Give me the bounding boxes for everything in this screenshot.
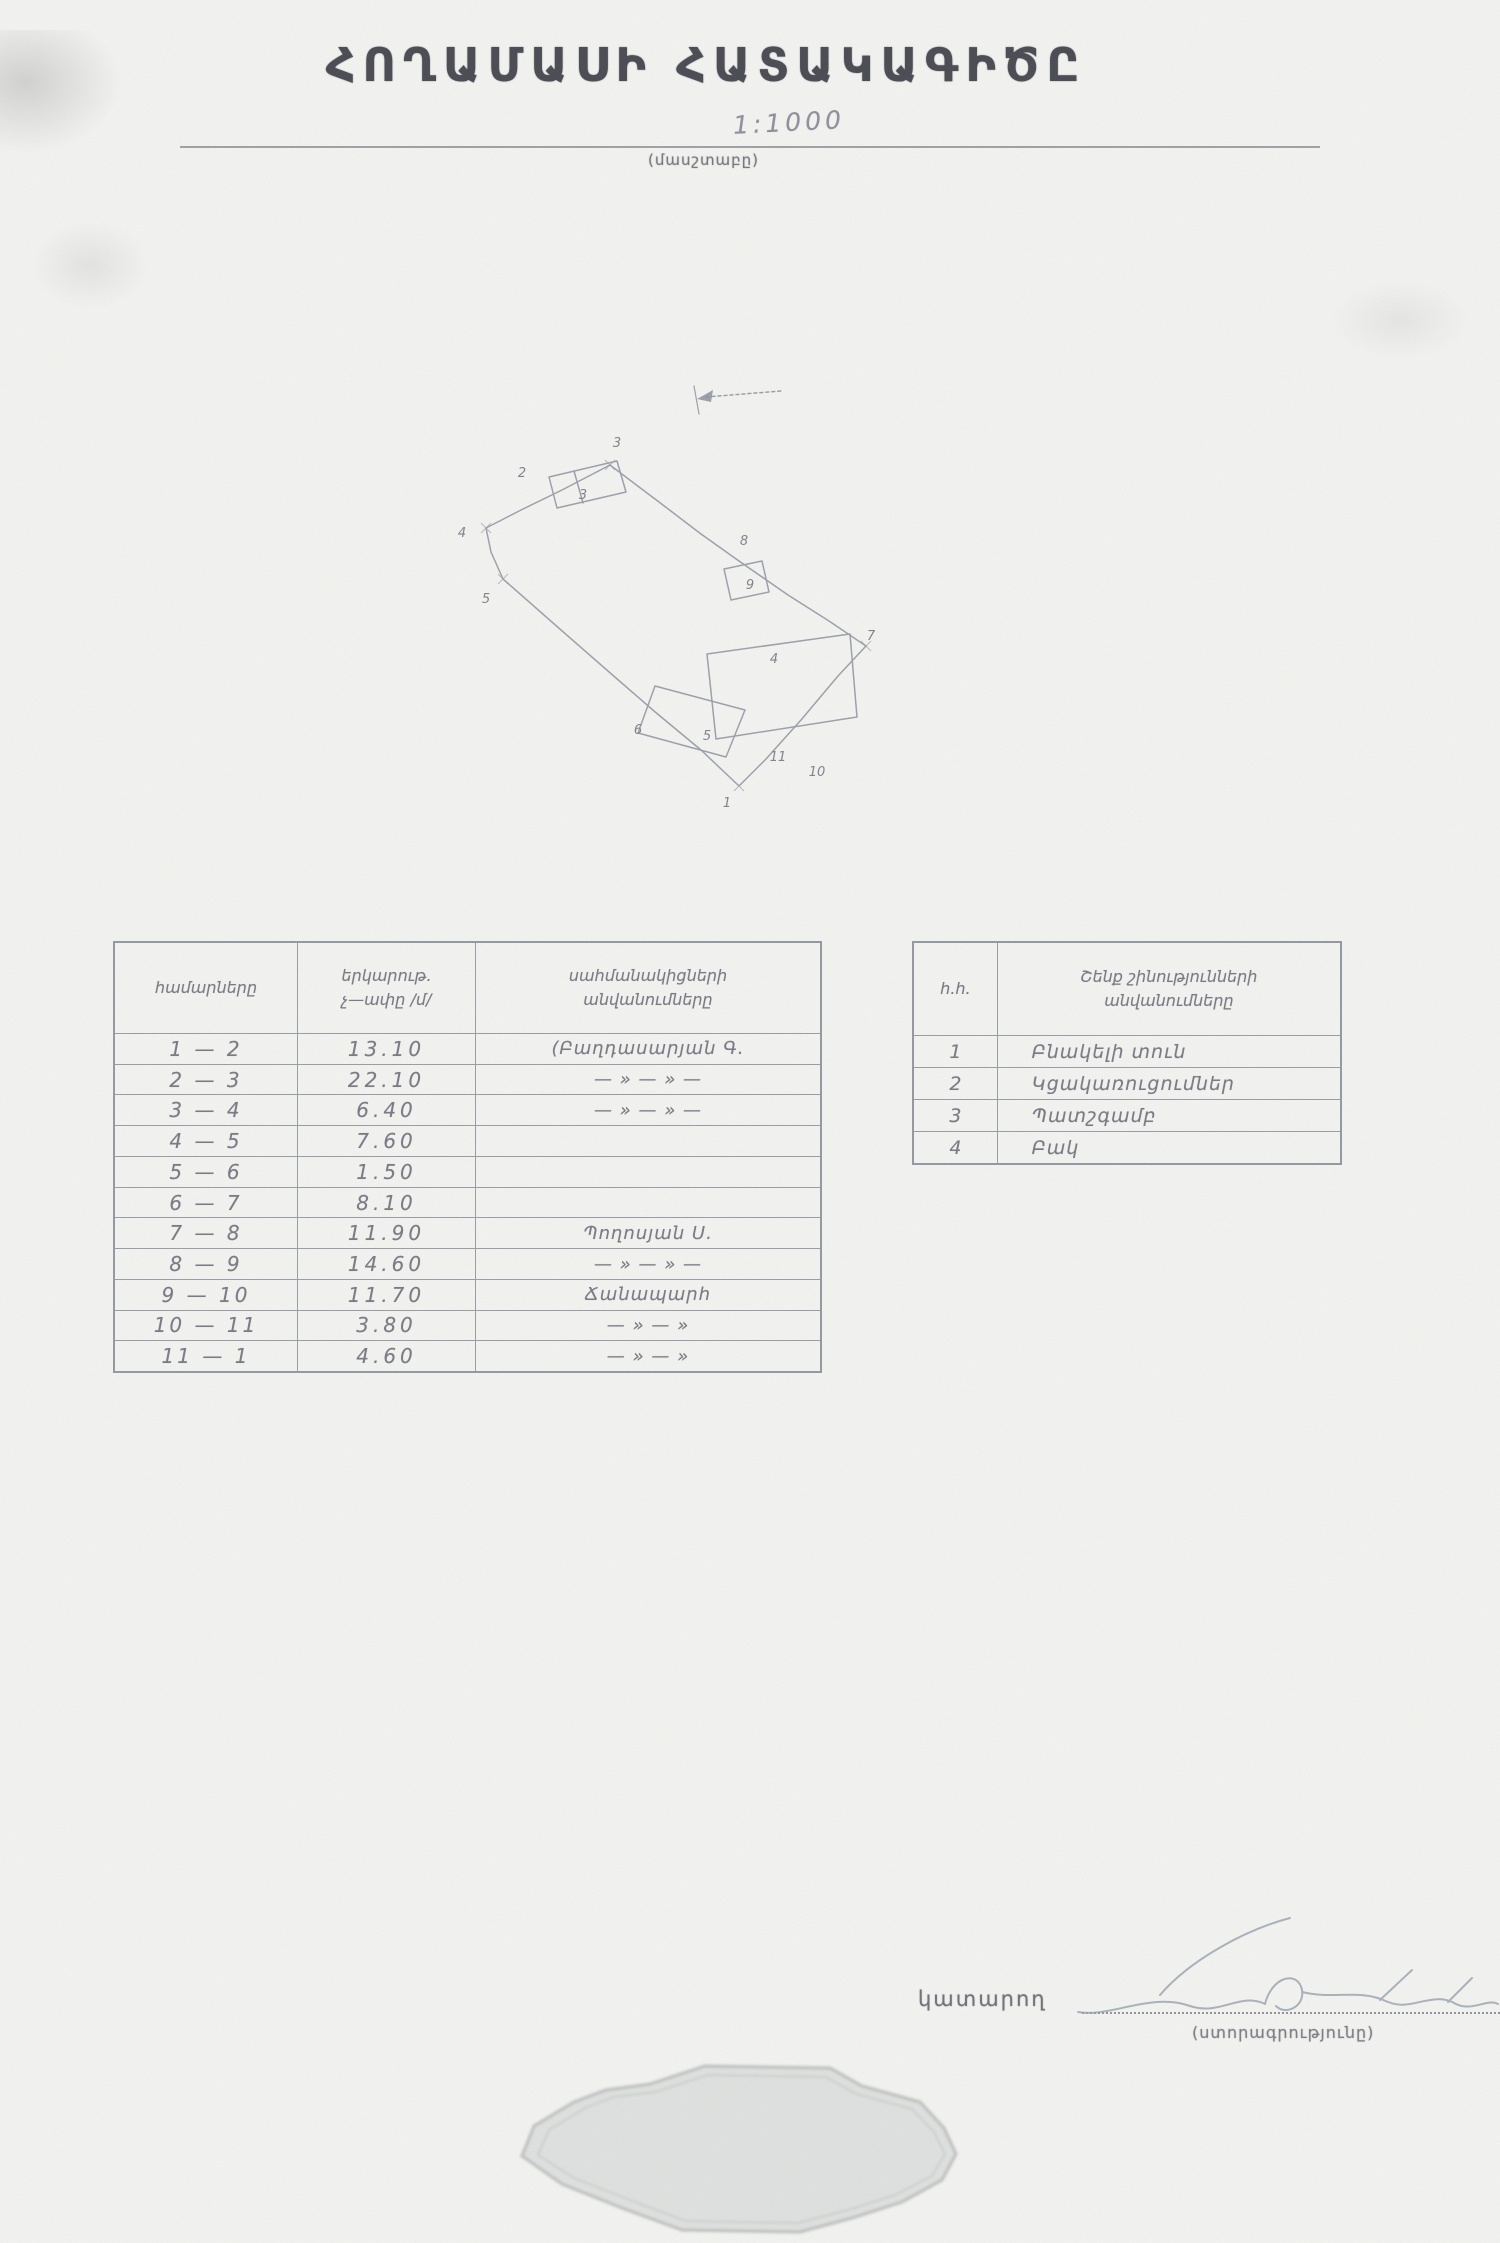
boundary-row: 11 — 14.60— » — » <box>115 1340 820 1371</box>
boundary-cell-seg: 3 — 4 <box>115 1095 297 1125</box>
vertex-label-5: 5 <box>482 592 490 607</box>
structure-label-4: 4 <box>770 652 778 667</box>
vertex-label-3: 3 <box>613 436 621 451</box>
boundary-cell-nbr <box>475 1126 820 1156</box>
scan-smudge-right <box>1330 280 1470 360</box>
header-neighbors-line2: անվանումները <box>583 988 712 1012</box>
structure-cell-sname: Կցակառուցումներ <box>997 1068 1340 1099</box>
header-number-text: հ.հ. <box>940 977 970 1001</box>
header-length-line1: երկարութ. <box>341 964 431 988</box>
boundary-cell-len: 22.10 <box>297 1065 475 1095</box>
header-number: հ.հ. <box>914 943 997 1035</box>
header-segments: համարները <box>115 943 297 1033</box>
boundaries-table: համարները երկարութ. չ—ափը /մ/ սահմանակից… <box>113 941 822 1373</box>
boundary-cell-len: 1.50 <box>297 1157 475 1187</box>
header-structure-line1: Շենք շինությունների <box>1080 965 1257 989</box>
vertex-label-1: 1 <box>723 796 731 811</box>
boundary-cell-nbr: Պողոսյան Ս. <box>475 1218 820 1248</box>
boundary-cell-nbr: — » — » <box>475 1341 820 1371</box>
boundary-cell-nbr: — » — » — <box>475 1249 820 1279</box>
boundary-cell-seg: 7 — 8 <box>115 1218 297 1248</box>
structures-table-body: 1Բնակելի տուն2Կցակառուցումներ3Պատշգամբ4Բ… <box>914 1035 1340 1163</box>
structure-cell-snum: 4 <box>914 1132 997 1163</box>
boundary-cell-nbr: Ճանապարհ <box>475 1280 820 1310</box>
boundary-cell-len: 4.60 <box>297 1341 475 1371</box>
boundary-row: 10 — 113.80— » — » <box>115 1310 820 1341</box>
boundary-row: 2 — 322.10— » — » — <box>115 1064 820 1095</box>
structure-row: 2Կցակառուցումներ <box>914 1067 1340 1099</box>
scale-underline <box>180 146 1320 148</box>
header-structure-names: Շենք շինությունների անվանումները <box>997 943 1340 1035</box>
boundary-cell-nbr <box>475 1188 820 1218</box>
boundary-cell-seg: 4 — 5 <box>115 1126 297 1156</box>
boundary-row: 5 — 61.50 <box>115 1156 820 1187</box>
boundary-cell-len: 8.10 <box>297 1188 475 1218</box>
boundary-cell-len: 11.90 <box>297 1218 475 1248</box>
boundary-cell-len: 13.10 <box>297 1034 475 1064</box>
boundary-cell-len: 14.60 <box>297 1249 475 1279</box>
plot-outline <box>486 465 866 786</box>
boundary-row: 3 — 46.40— » — » — <box>115 1094 820 1125</box>
stamp-seal <box>500 2056 970 2243</box>
boundary-cell-len: 7.60 <box>297 1126 475 1156</box>
structure-cell-sname: Բակ <box>997 1132 1340 1163</box>
document-title: ՀՈՂԱՄԱՍԻ ՀԱՏԱԿԱԳԻԾԸ <box>326 38 1087 92</box>
header-structure-line2: անվանումները <box>1104 989 1233 1013</box>
structure-rect-bottom <box>638 686 745 757</box>
boundary-cell-nbr: — » — » — <box>475 1065 820 1095</box>
boundary-cell-nbr <box>475 1157 820 1187</box>
boundary-cell-nbr: (Բաղդասարյան Գ. <box>475 1034 820 1064</box>
boundary-cell-seg: 8 — 9 <box>115 1249 297 1279</box>
boundary-cell-len: 11.70 <box>297 1280 475 1310</box>
scanned-document-page: ՀՈՂԱՄԱՍԻ ՀԱՏԱԿԱԳԻԾԸ 1:1000 (մասշտաբը) <box>0 0 1500 2243</box>
scan-smudge-left-edge <box>30 220 150 310</box>
north-arrow-line <box>706 391 781 397</box>
structures-table: հ.հ. Շենք շինությունների անվանումները 1Բ… <box>912 941 1342 1165</box>
boundary-row: 9 — 1011.70Ճանապարհ <box>115 1279 820 1310</box>
signature-caption: (ստորագրությունը) <box>1192 2023 1374 2042</box>
structure-cell-sname: Բնակելի տուն <box>997 1036 1340 1067</box>
boundary-row: 6 — 78.10 <box>115 1187 820 1218</box>
vertex-label-7: 7 <box>867 629 876 644</box>
vertex-label-11: 11 <box>770 750 787 765</box>
north-arrow-tick <box>694 386 699 414</box>
stamp-shape <box>522 2066 956 2232</box>
structure-row: 4Բակ <box>914 1131 1340 1163</box>
boundary-cell-len: 3.80 <box>297 1311 475 1341</box>
boundary-cell-seg: 11 — 1 <box>115 1341 297 1371</box>
structure-row: 3Պատշգամբ <box>914 1099 1340 1131</box>
header-neighbors-line1: սահմանակիցների <box>569 964 727 988</box>
boundary-row: 1 — 213.10(Բաղդասարյան Գ. <box>115 1033 820 1064</box>
vertex-label-4: 4 <box>458 526 466 541</box>
scale-value-handwritten: 1:1000 <box>732 105 845 140</box>
vertex-label-2: 2 <box>518 466 526 481</box>
boundaries-table-body: 1 — 213.10(Բաղդասարյան Գ.2 — 322.10— » —… <box>115 1033 820 1371</box>
boundary-row: 4 — 57.60 <box>115 1125 820 1156</box>
boundary-cell-nbr: — » — » <box>475 1311 820 1341</box>
vertex-label-9: 9 <box>746 578 754 593</box>
boundary-row: 7 — 811.90Պողոսյան Ս. <box>115 1217 820 1248</box>
header-segments-text: համարները <box>155 976 257 1000</box>
boundary-cell-seg: 9 — 10 <box>115 1280 297 1310</box>
north-arrow-head <box>697 390 713 402</box>
header-length: երկարութ. չ—ափը /մ/ <box>297 943 475 1033</box>
header-neighbors: սահմանակիցների անվանումները <box>475 943 820 1033</box>
vertex-label-6: 6 <box>634 723 642 738</box>
boundaries-table-header: համարները երկարութ. չ—ափը /մ/ սահմանակից… <box>115 943 820 1033</box>
header-length-line2: չ—ափը /մ/ <box>342 988 432 1012</box>
boundary-cell-seg: 2 — 3 <box>115 1065 297 1095</box>
executor-label: կատարող <box>918 1987 1047 2011</box>
structure-label-5: 5 <box>703 729 711 744</box>
structure-cell-sname: Պատշգամբ <box>997 1100 1340 1131</box>
boundary-cell-seg: 6 — 7 <box>115 1188 297 1218</box>
boundary-cell-seg: 10 — 11 <box>115 1311 297 1341</box>
structure-cell-snum: 3 <box>914 1100 997 1131</box>
boundary-row: 8 — 914.60— » — » — <box>115 1248 820 1279</box>
structure-cell-snum: 2 <box>914 1068 997 1099</box>
structures-table-header: հ.հ. Շենք շինությունների անվանումները <box>914 943 1340 1035</box>
sketch-labels: 1234567891011345 <box>458 436 876 811</box>
boundary-cell-seg: 5 — 6 <box>115 1157 297 1187</box>
boundary-cell-seg: 1 — 2 <box>115 1034 297 1064</box>
structure-row: 1Բնակելի տուն <box>914 1035 1340 1067</box>
boundary-cell-len: 6.40 <box>297 1095 475 1125</box>
structure-label-3: 3 <box>579 488 587 503</box>
vertex-label-8: 8 <box>740 534 748 549</box>
plot-sketch: 1234567891011345 <box>430 360 920 830</box>
scale-caption: (մասշտաբը) <box>648 151 759 169</box>
structure-cell-snum: 1 <box>914 1036 997 1067</box>
boundary-cell-nbr: — » — » — <box>475 1095 820 1125</box>
scan-smudge-top-left <box>0 30 130 160</box>
vertex-ticks <box>481 460 871 791</box>
vertex-label-10: 10 <box>809 765 826 780</box>
structure-rect-large <box>707 634 857 739</box>
